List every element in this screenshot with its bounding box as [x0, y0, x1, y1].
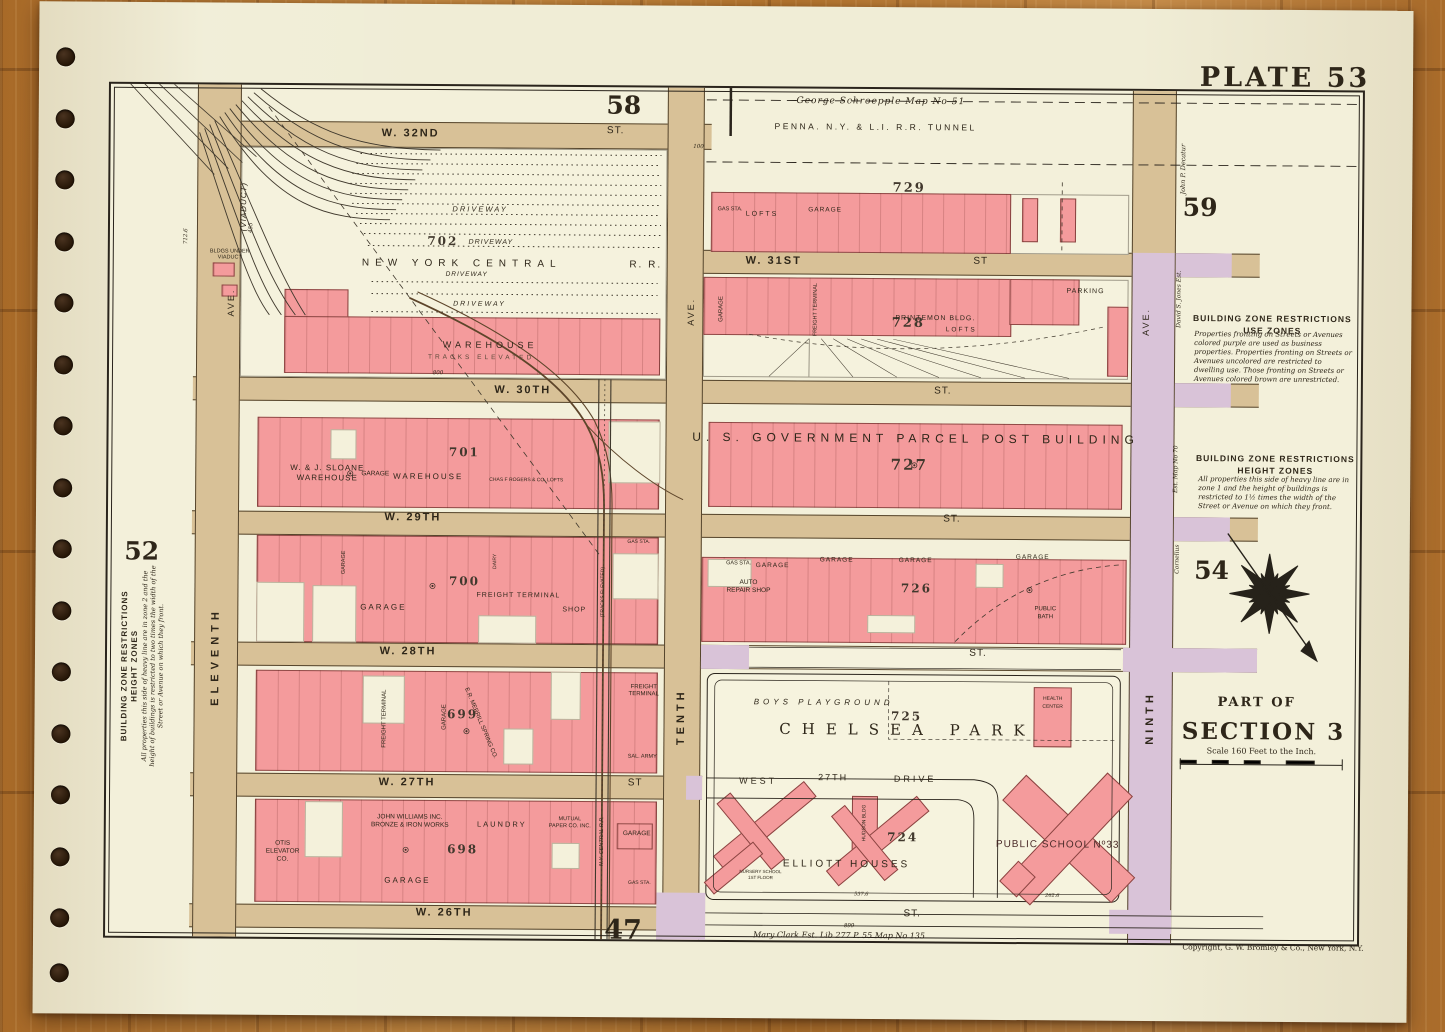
- adjacent-plate-58: 58: [606, 93, 641, 118]
- bldg-under-viaduct: [213, 262, 235, 276]
- freight-terminal-label: FREIGHT TERMINAL: [381, 690, 387, 748]
- driveway-label: DRIVEWAY: [446, 272, 488, 279]
- block-729-lot: [1022, 198, 1038, 242]
- atlas-page: PLATE 53 Copyright, G. W. Bromley & Co.,…: [32, 1, 1413, 1023]
- street-w30th: [193, 376, 1259, 407]
- label-w29th-st: ST.: [943, 515, 961, 525]
- binder-hole: [55, 170, 74, 189]
- chelsea-park-label: CHELSEA PARK: [779, 722, 1035, 739]
- binder-hole: [56, 47, 75, 66]
- binder-hole-column: [40, 1, 1414, 11]
- driveway-label: DRIVEWAY: [452, 205, 507, 213]
- height-zones-title2: HEIGHT ZONES: [1237, 466, 1313, 475]
- lot-patch: [608, 421, 660, 483]
- health-center-label2: CENTER: [1042, 705, 1063, 710]
- laundry-label: LAUNDRY: [477, 821, 527, 829]
- binder-hole: [55, 232, 74, 251]
- label-ninth-ave-suffix: AVE.: [1142, 308, 1151, 336]
- otis-label2: ELEVATOR: [266, 849, 300, 856]
- binder-hole: [52, 662, 71, 681]
- lot-patch: [503, 728, 533, 764]
- block-727-number: 727: [891, 458, 928, 473]
- binder-hole: [56, 109, 75, 128]
- label-w30th-st: ST.: [934, 386, 952, 396]
- binder-hole: [54, 355, 73, 374]
- label-eleventh-ave-suffix: AVE.: [227, 289, 236, 317]
- john-williams-label2: BRONZE & IRON WORKS: [371, 822, 449, 829]
- dim-number: 455: [249, 222, 255, 233]
- gas-station-label: GAS STA.: [718, 207, 743, 213]
- purple-w30-east: [1175, 383, 1231, 407]
- label-w28th-st: ST.: [969, 649, 987, 659]
- garage-label: GARAGE: [623, 831, 651, 838]
- shop-label: SHOP: [562, 606, 586, 613]
- freight-terminal-label: FREIGHT TERMINAL: [813, 283, 819, 336]
- lot-patch: [305, 801, 343, 857]
- parcel-post-label: U. S. GOVERNMENT PARCEL POST BUILDING: [692, 431, 1139, 446]
- block-701-number: 701: [449, 446, 480, 458]
- block-726-number: 726: [901, 582, 932, 594]
- lot-patch: [551, 672, 581, 720]
- tracks-elevated-label: TRACKS ELEVATED: [428, 355, 534, 362]
- schroepple-note: George Schroepple Map No 51: [797, 97, 966, 107]
- dim-number: 712.6: [184, 228, 190, 244]
- garage-label: GARAGE: [360, 603, 406, 611]
- photo-of-atlas-on-wood-floor: { "colors":{"paper":"#f0edd6","pink":"#f…: [0, 0, 1445, 1032]
- garage-label: GARAGE: [384, 877, 430, 885]
- otis-label3: CO.: [277, 857, 289, 864]
- health-center-label: HEALTH: [1043, 697, 1062, 702]
- lot-patch: [552, 843, 580, 869]
- boys-playground-label: BOYS PLAYGROUND: [754, 698, 894, 707]
- street-w32nd: [207, 120, 712, 150]
- garage-label: GARAGE: [756, 563, 790, 570]
- lot-patch: [312, 585, 356, 642]
- dairy-label: DAIRY: [493, 554, 498, 569]
- lot-patch: [975, 564, 1003, 588]
- cornelius-note: Cornelius: [1175, 545, 1181, 574]
- block-699: [255, 670, 658, 774]
- driveway-label: DRIVEWAY: [453, 301, 506, 308]
- nursery-label2: 1ST FLOOR: [748, 876, 773, 881]
- garage-label: GARAGE: [1016, 555, 1050, 562]
- dim-number: 262.6: [1045, 894, 1059, 899]
- dim-number: 537.6: [854, 892, 868, 897]
- left-height-zone-note: BUILDING ZONE RESTRICTIONS HEIGHT ZONES …: [120, 560, 166, 772]
- label-w30th: W. 30TH: [494, 385, 551, 396]
- mutual-paper-label2: PAPER CO. INC.: [549, 824, 591, 830]
- purple-w27-stub: [686, 776, 702, 800]
- label-w26th-st: ST.: [903, 909, 921, 919]
- label-w26th: W. 26TH: [416, 907, 473, 918]
- garage-label: GARAGE: [441, 704, 447, 730]
- label-w31st: W. 31ST: [746, 256, 802, 267]
- compass-icon: [1227, 534, 1318, 662]
- lot-patch: [478, 615, 536, 643]
- adjacent-plate-47: 47: [604, 917, 642, 944]
- west-drive-label: WEST: [739, 777, 777, 786]
- use-zones-body: Properties fronting on Streets or Avenue…: [1194, 330, 1352, 386]
- sloane-warehouse-label: W. & J. SLOANE: [290, 464, 364, 473]
- use-zones-title1: BUILDING ZONE RESTRICTIONS: [1193, 314, 1352, 324]
- warehouse-label: WAREHOUSE: [443, 341, 538, 351]
- adjacent-plate-54: 54: [1194, 558, 1229, 583]
- copyright-line: Copyright, G. W. Bromley & Co., New York…: [1182, 943, 1363, 952]
- driveway-label: DRIVEWAY: [469, 239, 514, 246]
- otis-label: OTIS: [275, 841, 290, 848]
- gas-station-label: GAS STA.: [627, 540, 650, 545]
- lot-patch: [256, 582, 304, 642]
- purple-w29-east: [1174, 517, 1230, 541]
- elliott-houses-label: ELLIOTT HOUSES: [783, 859, 910, 870]
- garage-label: GARAGE: [899, 558, 933, 565]
- tracks-elevated-label: (TRACKS ELEVATED): [601, 567, 606, 617]
- height-zones-title1: BUILDING ZONE RESTRICTIONS: [1196, 454, 1355, 464]
- plate-title: PLATE 53: [1200, 64, 1371, 92]
- parking-label: PARKING: [1067, 288, 1105, 295]
- block-728-printemon: [1009, 279, 1079, 325]
- drive-27th-label: 27TH: [818, 773, 848, 782]
- scale-bar: [1180, 758, 1342, 770]
- label-ninth-ave: NINTH: [1145, 691, 1156, 745]
- public-bath-label2: BATH: [1037, 614, 1053, 620]
- purple-tenth-w26: [656, 893, 705, 940]
- label-tenth-ave-suffix: AVE.: [687, 298, 696, 326]
- block-700-number: 700: [449, 575, 480, 587]
- garage-label: GARAGE: [820, 557, 854, 564]
- label-w27th-st: ST: [628, 778, 643, 788]
- tunnel-label: PENNA. N.Y. & L.I. R.R. TUNNEL: [775, 122, 977, 132]
- public-bath-label: PUBLIC: [1034, 606, 1056, 612]
- section-title: SECTION 3: [1182, 720, 1346, 744]
- gas-station-label: GAS STA.: [628, 881, 651, 886]
- purple-w31-east: [1176, 253, 1232, 277]
- height-zones-body: All properties this side of heavy line a…: [1198, 475, 1354, 512]
- purple-w26-east: [1109, 910, 1171, 934]
- garage-label: GARAGE: [361, 471, 389, 478]
- label-w28th: W. 28TH: [380, 646, 437, 657]
- dim-number: 899: [844, 924, 855, 930]
- label-w27th: W. 27TH: [379, 777, 436, 788]
- scale-note: Scale 160 Feet to the Inch.: [1207, 747, 1316, 756]
- lot-patch: [612, 553, 658, 599]
- jones-note: David S. Jones Est.: [1176, 270, 1182, 327]
- ny-central-rr-label: R. R.: [629, 260, 662, 270]
- ny-central-corridor-label: N.Y. CENTRAL R.R.: [600, 816, 606, 866]
- binder-hole: [52, 601, 71, 620]
- avenue-eleventh: [192, 84, 242, 936]
- auto-repair-label2: REPAIR SHOP: [726, 588, 770, 595]
- avenue-ninth-upper: [1132, 91, 1177, 255]
- map-sheet: 58 59 52 54 47 George Schroepple Map No …: [103, 82, 1365, 947]
- mutual-paper-label: MUTUAL: [559, 817, 582, 823]
- binder-hole: [51, 724, 70, 743]
- block-729-lot: [1060, 198, 1076, 242]
- block-728-lot: [1107, 307, 1128, 377]
- label-w31st-st: ST: [973, 257, 988, 267]
- nursery-label: NURSERY SCHOOL: [739, 870, 781, 875]
- garage-label: GARAGE: [718, 296, 724, 322]
- garage-label: GARAGE: [808, 207, 842, 214]
- label-tenth-ave: TENTH: [676, 688, 687, 745]
- street-w27th: [190, 772, 702, 800]
- block-698-number: 698: [447, 843, 478, 855]
- decatur-note: John P. Decatur: [1180, 144, 1187, 195]
- label-w32nd: W. 32ND: [382, 128, 440, 139]
- left-zone-title1: BUILDING ZONE RESTRICTIONS: [120, 560, 129, 772]
- lot-patch: [330, 429, 356, 459]
- hudson-bldg-label: HUDSON BLDG: [862, 805, 867, 842]
- block-702-number: 702: [427, 235, 458, 247]
- freight-terminal-label: FREIGHT TERMINAL: [615, 684, 673, 699]
- label-eleventh-ave: ELEVENTH: [210, 607, 222, 706]
- lot-patch: [867, 615, 915, 633]
- binder-hole: [54, 293, 73, 312]
- label-viaduct: (VIADUCT): [240, 182, 248, 232]
- drive-label: DRIVE: [894, 775, 937, 784]
- salvation-army-label: SAL. ARMY: [628, 755, 657, 761]
- left-zone-body: All properties this side of heavy line a…: [140, 560, 166, 772]
- binder-hole: [54, 416, 73, 435]
- label-w32nd-st: ST.: [607, 126, 625, 136]
- dim-number: 100: [693, 145, 704, 151]
- garage-label: GARAGE: [342, 551, 348, 575]
- block-729-number: 729: [893, 182, 926, 195]
- label-w29th: W. 29TH: [385, 512, 442, 523]
- john-williams-label: JOHN WILLIAMS INC.: [377, 814, 442, 821]
- part-of-label: PART OF: [1218, 696, 1296, 710]
- freight-terminal-label: FREIGHT TERMINAL: [476, 592, 560, 600]
- left-zone-title2: HEIGHT ZONES: [130, 560, 139, 772]
- public-school-label: PUBLIC SCHOOL Nº33: [996, 840, 1120, 851]
- binder-hole: [53, 478, 72, 497]
- binder-hole: [50, 908, 69, 927]
- dim-number: 800: [433, 371, 444, 377]
- binder-hole: [51, 847, 70, 866]
- binder-hole: [53, 539, 72, 558]
- sloane-warehouse-label2: WAREHOUSE: [297, 474, 358, 482]
- block-729-buildings: [711, 192, 1011, 254]
- lofts-label: LOFTS: [946, 327, 977, 334]
- mary-clark-note: Mary Clark Est. Lib 277 P. 55 Map No 135: [753, 931, 925, 940]
- auto-repair-label: AUTO: [740, 580, 758, 587]
- lofts-label: LOFTS: [746, 211, 779, 218]
- avenue-tenth: [662, 88, 705, 940]
- printemon-bldg-label: PRINTEMON BLDG.: [895, 315, 975, 323]
- block-724-number: 724: [887, 831, 918, 843]
- estmap-note: Est. Map No 70: [1173, 445, 1179, 493]
- binder-hole: [50, 963, 69, 982]
- warehouse-label: WAREHOUSE: [393, 473, 463, 481]
- ny-central-label: NEW YORK CENTRAL: [362, 258, 562, 269]
- purple-w28-east: [1123, 648, 1257, 673]
- adjacent-plate-59: 59: [1183, 195, 1218, 220]
- purple-w28-west: [701, 645, 749, 669]
- rogers-lofts-label: CHAS F ROGERS & CO. LOFTS: [489, 478, 563, 484]
- bldgs-under-viaduct-label: BLDGS UNDER VIADUCT: [206, 248, 254, 260]
- street-w28th-uncolored: [747, 646, 1123, 671]
- avenue-ninth-purple: [1127, 253, 1176, 943]
- binder-hole: [51, 785, 70, 804]
- gas-station-label: GAS STA.: [726, 561, 751, 567]
